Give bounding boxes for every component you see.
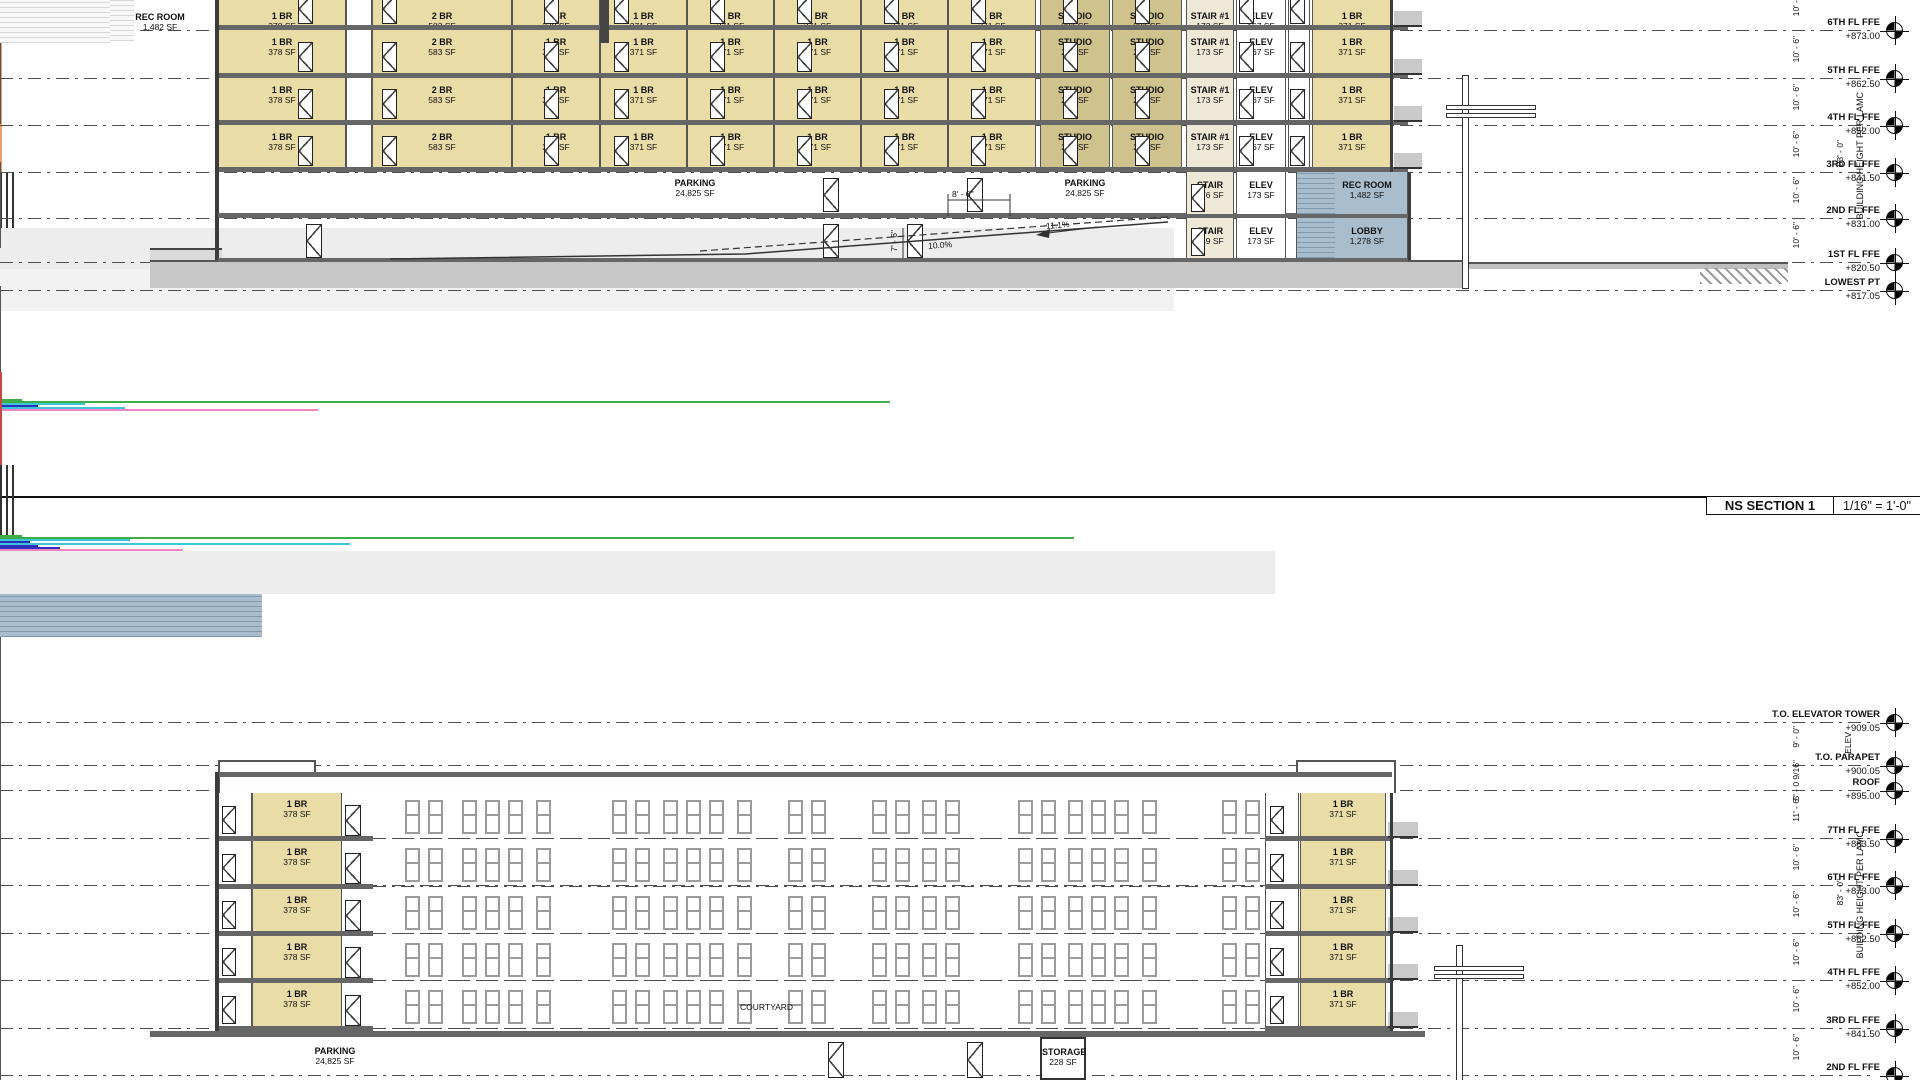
window-symbol: [635, 990, 650, 1024]
building-height-note: BUILDING HEIGHT PER LAMC: [1856, 831, 1865, 958]
window-symbol: [1091, 943, 1106, 977]
window-symbol: [1068, 800, 1083, 834]
datum-target-icon: [1886, 757, 1903, 774]
window-symbol: [686, 896, 701, 930]
window-symbol: [1018, 896, 1033, 930]
building-wall-left: [215, 772, 219, 1032]
section-marker-stem: [0, 286, 1, 372]
window-symbol: [663, 896, 678, 930]
window-symbol: [428, 848, 443, 882]
window-symbol: [788, 896, 803, 930]
building-wall-right: [1390, 793, 1393, 1031]
door-symbol: [1270, 854, 1284, 882]
level-elevation: +909.05: [1700, 724, 1880, 734]
facade-floor-line: [373, 980, 1265, 981]
window-symbol: [428, 896, 443, 930]
level-label: T.O. PARAPET: [1700, 753, 1880, 763]
window-symbol: [405, 943, 420, 977]
door-symbol: [222, 854, 236, 882]
parking-wall: [600, 0, 609, 43]
window-symbol: [1041, 800, 1056, 834]
window-symbol: [1114, 848, 1129, 882]
window-symbol: [1222, 943, 1237, 977]
window-symbol: [922, 990, 937, 1024]
window-symbol: [536, 800, 551, 834]
window-symbol: [462, 896, 477, 930]
unit-label: 1 BR378 SF: [253, 847, 341, 867]
level-dim: 10' - 6": [1792, 939, 1801, 965]
unit-name: 1 BR: [1301, 799, 1385, 809]
window-symbol: [612, 848, 627, 882]
unit-cell: 1 BR378 SF: [252, 889, 342, 931]
parking-door: [967, 1042, 983, 1078]
window-symbol: [405, 896, 420, 930]
window-symbol: [922, 896, 937, 930]
building-height-value: 83' - 0": [1836, 879, 1845, 905]
window-symbol: [1222, 990, 1237, 1024]
level-elevation: +862.50: [1700, 935, 1880, 945]
floor-gridline: [0, 722, 1872, 723]
parking-wall-hatch: [0, 0, 110, 43]
reference-line-red: [0, 372, 2, 465]
unit-cell: 1 BR371 SF: [1300, 889, 1386, 931]
window-symbol: [872, 990, 887, 1024]
window-symbol: [737, 848, 752, 882]
level-elevation: +841.50: [1700, 1030, 1880, 1040]
pole-crossarm-1: [1434, 966, 1524, 971]
courtyard-label: COURTYARD: [740, 1002, 793, 1012]
window-symbol: [872, 800, 887, 834]
window-symbol: [811, 800, 826, 834]
section-marker: 4A301: [0, 124, 64, 162]
elev-shaft: [1265, 841, 1299, 884]
roof-band: [218, 777, 1396, 793]
window-symbol: [612, 896, 627, 930]
level-label: 3RD FL FFE: [1700, 1016, 1880, 1026]
unit-sf: 378 SF: [253, 952, 341, 962]
window-symbol: [1142, 990, 1157, 1024]
level-dim: 11' - 6": [1792, 796, 1801, 822]
window-symbol: [737, 896, 752, 930]
level-label: ROOF: [1700, 778, 1880, 788]
window-symbol: [1018, 800, 1033, 834]
window-symbol: [405, 848, 420, 882]
unit-name: 1 BR: [253, 895, 341, 905]
window-symbol: [945, 990, 960, 1024]
window-symbol: [405, 800, 420, 834]
window-symbol: [635, 943, 650, 977]
window-symbol: [895, 990, 910, 1024]
window-symbol: [922, 800, 937, 834]
stair-shaft: [218, 889, 252, 931]
window-symbol: [1068, 848, 1083, 882]
window-symbol: [663, 848, 678, 882]
window-symbol: [922, 943, 937, 977]
unit-label: 1 BR378 SF: [253, 942, 341, 962]
stair-shaft: [218, 841, 252, 884]
window-symbol: [462, 800, 477, 834]
window-symbol: [428, 990, 443, 1024]
rec-sf: 1,482 SF: [100, 22, 220, 32]
level-label: 2ND FL FFE: [1700, 1063, 1880, 1073]
unit-label: 1 BR371 SF: [1301, 799, 1385, 819]
window-symbol: [1091, 848, 1106, 882]
level-dim: 5' - 0 9/16": [1792, 760, 1801, 801]
window-symbol: [1091, 800, 1106, 834]
window-symbol: [663, 800, 678, 834]
unit-label: 1 BR378 SF: [253, 799, 341, 819]
dim-line: [0, 637, 1, 990]
datum-target-icon: [1886, 972, 1903, 989]
window-symbol: [1245, 848, 1260, 882]
level-elevation: +883.50: [1700, 840, 1880, 850]
window-symbol: [1091, 990, 1106, 1024]
section-drawing-sheet: 1 BR378 SF2 BR583 SF1 BR370 SF1 BR371 SF…: [0, 0, 1920, 1080]
window-symbol: [686, 943, 701, 977]
window-symbol: [788, 943, 803, 977]
window-symbol: [612, 990, 627, 1024]
window-symbol: [1041, 990, 1056, 1024]
window-symbol: [1222, 800, 1237, 834]
section-marker: 2A301: [0, 248, 64, 286]
unit-label: 1 BR371 SF: [1301, 847, 1385, 867]
window-symbol: [635, 800, 650, 834]
window-symbol: [1142, 943, 1157, 977]
parking-door: [828, 1042, 844, 1078]
storage-name: STORAGE: [1042, 1047, 1084, 1057]
window-symbol: [737, 800, 752, 834]
window-symbol: [428, 943, 443, 977]
level-dim-note: ELEV: [1844, 732, 1853, 754]
window-symbol: [508, 896, 523, 930]
window-symbol: [1041, 848, 1056, 882]
door-symbol: [1270, 996, 1284, 1024]
window-symbol: [508, 800, 523, 834]
section-marker-stem: [0, 38, 1, 124]
window-symbol: [709, 990, 724, 1024]
window-symbol: [635, 896, 650, 930]
stair-shaft: [218, 936, 252, 978]
datum-target-icon: [1886, 1020, 1903, 1037]
storage-cell: STORAGE228 SF: [1040, 1037, 1086, 1080]
elev-shaft: [1265, 889, 1299, 931]
facade-floor-line: [373, 933, 1265, 934]
level-dim: 10' - 6": [1792, 844, 1801, 870]
window-symbol: [508, 848, 523, 882]
unit-cell: 1 BR378 SF: [252, 793, 342, 836]
door-symbol: [1270, 901, 1284, 929]
datum-target-icon: [1886, 925, 1903, 942]
window-symbol: [1114, 943, 1129, 977]
level-label: 6TH FL FFE: [1700, 873, 1880, 883]
level-dim: 10' - 6": [1792, 891, 1801, 917]
unit-sf: 371 SF: [1301, 952, 1385, 962]
door-symbol: [1270, 948, 1284, 976]
window-symbol: [1245, 990, 1260, 1024]
door-symbol: [345, 947, 361, 978]
window-symbol: [1068, 943, 1083, 977]
window-symbol: [1245, 896, 1260, 930]
unit-name: 1 BR: [253, 799, 341, 809]
unit-sf: 378 SF: [253, 999, 341, 1009]
window-symbol: [945, 800, 960, 834]
window-symbol: [485, 848, 500, 882]
door-symbol: [222, 996, 236, 1024]
balcony-railing: [0, 507, 16, 521]
unit-name: 1 BR: [1301, 942, 1385, 952]
unit-sf: 378 SF: [253, 809, 341, 819]
window-symbol: [737, 943, 752, 977]
unit-cell: 1 BR378 SF: [252, 936, 342, 978]
window-symbol: [508, 943, 523, 977]
window-symbol: [945, 943, 960, 977]
parking-sf: 24,825 SF: [280, 1056, 390, 1066]
balcony-railing: [0, 493, 16, 507]
window-symbol: [635, 848, 650, 882]
level-elevation: +895.00: [1700, 792, 1880, 802]
unit-sf: 378 SF: [253, 857, 341, 867]
window-symbol: [1245, 943, 1260, 977]
level-dim: 10' - 6": [1792, 986, 1801, 1012]
door-symbol: [222, 901, 236, 929]
window-symbol: [709, 943, 724, 977]
unit-name: 1 BR: [1301, 895, 1385, 905]
window-symbol: [686, 990, 701, 1024]
window-symbol: [1142, 848, 1157, 882]
unit-name: 1 BR: [253, 942, 341, 952]
parking-slab: [150, 1031, 1425, 1037]
window-symbol: [872, 848, 887, 882]
level-label: 5TH FL FFE: [1700, 921, 1880, 931]
window-symbol: [811, 896, 826, 930]
door-symbol: [1270, 806, 1284, 834]
window-symbol: [1114, 800, 1129, 834]
level-elevation: +873.00: [1700, 887, 1880, 897]
level-label: T.O. ELEVATOR TOWER: [1700, 710, 1880, 720]
window-symbol: [686, 848, 701, 882]
level-elevation: +900.05: [1700, 767, 1880, 777]
unit-sf: 371 SF: [1301, 999, 1385, 1009]
window-symbol: [1091, 896, 1106, 930]
unit-label: 1 BR371 SF: [1301, 942, 1385, 962]
window-symbol: [945, 896, 960, 930]
unit-sf: 378 SF: [253, 905, 341, 915]
unit-label: 1 BR371 SF: [1301, 989, 1385, 1009]
window-symbol: [1068, 896, 1083, 930]
level-dim: 9' - 0": [1792, 726, 1801, 748]
window-symbol: [1018, 943, 1033, 977]
window-symbol: [1041, 896, 1056, 930]
ns-section-elevation: 3A3014A3012A3011 BR378 SF1 BR371 SF1 BR3…: [0, 0, 1920, 1080]
window-symbol: [1142, 800, 1157, 834]
unit-label: 1 BR371 SF: [1301, 895, 1385, 915]
unit-cell: 1 BR371 SF: [1300, 793, 1386, 836]
window-symbol: [462, 943, 477, 977]
window-symbol: [485, 990, 500, 1024]
rec-label: REC ROOM1,482 SF: [100, 12, 220, 32]
unit-name: 1 BR: [1301, 989, 1385, 999]
window-symbol: [1018, 990, 1033, 1024]
window-symbol: [663, 990, 678, 1024]
unit-name: 1 BR: [253, 847, 341, 857]
window-symbol: [1018, 848, 1033, 882]
unit-cell: 1 BR371 SF: [1300, 983, 1386, 1026]
utility-line-green: [0, 537, 1074, 539]
door-symbol: [222, 948, 236, 976]
level-dim: 10' - 6": [1792, 1034, 1801, 1060]
level-label: 7TH FL FFE: [1700, 826, 1880, 836]
window-symbol: [686, 800, 701, 834]
unit-cell: 1 BR371 SF: [1300, 841, 1386, 884]
window-symbol: [895, 943, 910, 977]
window-symbol: [872, 896, 887, 930]
door-symbol: [345, 853, 361, 884]
parking-level: [0, 551, 1275, 594]
window-symbol: [811, 943, 826, 977]
window-symbol: [945, 848, 960, 882]
datum-target-icon: [1886, 782, 1903, 799]
rec-name: REC ROOM: [100, 12, 220, 22]
window-symbol: [788, 848, 803, 882]
window-symbol: [811, 990, 826, 1024]
window-symbol: [428, 800, 443, 834]
window-symbol: [1041, 943, 1056, 977]
window-symbol: [788, 800, 803, 834]
elev-shaft: [1265, 936, 1299, 978]
window-symbol: [536, 896, 551, 930]
window-symbol: [811, 848, 826, 882]
unit-label: 1 BR378 SF: [253, 989, 341, 1009]
unit-sf: 371 SF: [1301, 857, 1385, 867]
window-symbol: [895, 848, 910, 882]
window-symbol: [1222, 896, 1237, 930]
storage-label: STORAGE228 SF: [1042, 1047, 1084, 1067]
unit-cell: 1 BR378 SF: [252, 983, 342, 1026]
door-symbol: [345, 805, 361, 836]
balcony-railing: [0, 521, 16, 535]
window-symbol: [1142, 896, 1157, 930]
datum-target-icon: [1886, 877, 1903, 894]
window-symbol: [405, 990, 420, 1024]
window-symbol: [709, 800, 724, 834]
unit-name: 1 BR: [253, 989, 341, 999]
window-symbol: [1245, 800, 1260, 834]
window-symbol: [709, 896, 724, 930]
door-symbol: [222, 806, 236, 834]
window-symbol: [462, 990, 477, 1024]
height-dim-line: [0, 990, 1, 1080]
storage-sf: 228 SF: [1042, 1057, 1084, 1067]
unit-sf: 371 SF: [1301, 809, 1385, 819]
elev-shaft: [1265, 983, 1299, 1026]
stair-shaft: [218, 793, 252, 836]
datum-target-icon: [1886, 714, 1903, 731]
facade-floor-line: [373, 838, 1265, 839]
section-marker-stem: [0, 162, 1, 248]
window-symbol: [536, 848, 551, 882]
datum-target-icon: [1886, 830, 1903, 847]
window-symbol: [872, 943, 887, 977]
window-symbol: [485, 896, 500, 930]
elev-shaft: [1265, 793, 1299, 836]
floor-gridline: [0, 1075, 1872, 1076]
window-symbol: [612, 800, 627, 834]
datum-target-icon: [1886, 1067, 1903, 1080]
unit-cell: 1 BR378 SF: [252, 841, 342, 884]
window-symbol: [536, 943, 551, 977]
facade-floor-line: [373, 1028, 1265, 1029]
window-symbol: [663, 943, 678, 977]
unit-cell: 1 BR371 SF: [1300, 936, 1386, 978]
door-symbol: [345, 900, 361, 931]
unit-label: 1 BR378 SF: [253, 895, 341, 915]
window-symbol: [1068, 990, 1083, 1024]
window-symbol: [485, 800, 500, 834]
unit-sf: 371 SF: [1301, 905, 1385, 915]
window-symbol: [895, 800, 910, 834]
window-symbol: [895, 896, 910, 930]
balcony-railing: [0, 479, 16, 493]
rec-room: REC ROOM1,482 SF: [0, 594, 262, 637]
window-symbol: [709, 848, 724, 882]
parking-name: PARKING: [280, 1046, 390, 1056]
window-symbol: [1222, 848, 1237, 882]
window-symbol: [1114, 896, 1129, 930]
stair-shaft: [218, 983, 252, 1026]
window-symbol: [612, 943, 627, 977]
door-symbol: [345, 995, 361, 1026]
window-symbol: [536, 990, 551, 1024]
window-symbol: [1114, 990, 1129, 1024]
window-symbol: [485, 943, 500, 977]
facade-floor-line: [373, 886, 1265, 887]
window-symbol: [462, 848, 477, 882]
level-label: 4TH FL FFE: [1700, 968, 1880, 978]
pole-crossarm-2: [1434, 974, 1524, 979]
unit-name: 1 BR: [1301, 847, 1385, 857]
utility-line-cyan: [0, 543, 350, 545]
level-elevation: +852.00: [1700, 982, 1880, 992]
window-symbol: [508, 990, 523, 1024]
parking-label: PARKING24,825 SF: [280, 1046, 390, 1066]
balcony-railing: [0, 465, 16, 479]
window-symbol: [922, 848, 937, 882]
